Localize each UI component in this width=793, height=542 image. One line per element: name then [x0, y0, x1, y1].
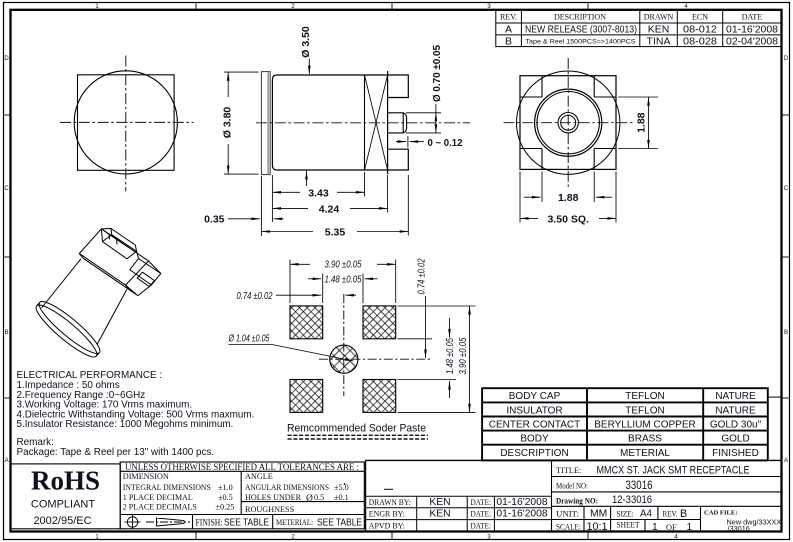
- svg-text:1.48 ±0.05: 1.48 ±0.05: [325, 274, 362, 285]
- svg-text:NEW RELEASE (3007-8013): NEW RELEASE (3007-8013): [525, 24, 637, 36]
- svg-text:Ø 3.80: Ø 3.80: [222, 107, 234, 139]
- svg-text:±0.1: ±0.1: [334, 493, 349, 502]
- svg-text:CENTER CONTACT: CENTER CONTACT: [489, 419, 580, 430]
- svg-text:08-012: 08-012: [683, 24, 717, 36]
- svg-text:D: D: [4, 56, 9, 62]
- svg-text:TINA: TINA: [647, 36, 671, 48]
- svg-text:01-16'2008: 01-16'2008: [496, 508, 547, 519]
- svg-text:KEN: KEN: [429, 497, 450, 508]
- svg-text:TEFLON: TEFLON: [625, 391, 664, 402]
- svg-text:A: A: [5, 458, 9, 464]
- svg-text:ECN: ECN: [692, 12, 708, 21]
- svg-text:ANGLE: ANGLE: [245, 472, 273, 481]
- svg-text:3.90 ±0.05: 3.90 ±0.05: [458, 337, 469, 374]
- svg-text:1 PLACE DECIMAL: 1 PLACE DECIMAL: [123, 493, 193, 502]
- svg-text:Ø 1.04 ±0.05: Ø 1.04 ±0.05: [228, 334, 270, 345]
- svg-text:A: A: [784, 458, 788, 464]
- svg-text:2002/95/EC: 2002/95/EC: [33, 515, 91, 527]
- svg-text:CAD FILE:: CAD FILE:: [704, 509, 738, 516]
- svg-text:FINISH:: FINISH:: [196, 519, 223, 529]
- svg-text:1.88: 1.88: [558, 192, 579, 204]
- svg-text:C: C: [4, 186, 9, 192]
- svg-text:ANGULAR DIMENSIONS: ANGULAR DIMENSIONS: [245, 483, 329, 492]
- svg-text:INSULATOR: INSULATOR: [506, 405, 562, 416]
- svg-text:METERIAL:: METERIAL:: [276, 517, 313, 527]
- svg-text:1: 1: [652, 522, 658, 533]
- svg-text:BODY CAP: BODY CAP: [509, 391, 561, 402]
- svg-text:METERIAL: METERIAL: [620, 448, 670, 459]
- svg-text:3.50 SQ.: 3.50 SQ.: [547, 213, 589, 225]
- svg-text:±1.0: ±1.0: [218, 483, 233, 492]
- svg-text:A4: A4: [640, 508, 653, 519]
- svg-text:SCALE:: SCALE:: [556, 521, 581, 531]
- svg-text:5.Insulator Resistance: 1000 M: 5.Insulator Resistance: 1000 Megohms min…: [17, 419, 234, 430]
- svg-text:01-16'2008: 01-16'2008: [496, 497, 547, 508]
- svg-text:C: C: [784, 186, 789, 192]
- svg-text:4.24: 4.24: [319, 203, 340, 215]
- svg-text:TEFLON: TEFLON: [625, 405, 664, 416]
- svg-text:01-16'2008: 01-16'2008: [726, 24, 778, 36]
- svg-text:SIZE:: SIZE:: [617, 508, 634, 518]
- svg-text:ENGR BY:: ENGR BY:: [369, 509, 405, 519]
- svg-text:Drawing NO:: Drawing NO:: [556, 495, 598, 505]
- svg-text:KEN: KEN: [429, 508, 450, 519]
- svg-text:±0.5: ±0.5: [218, 493, 233, 502]
- svg-text:NATURE: NATURE: [715, 405, 756, 416]
- svg-text:5.35: 5.35: [325, 227, 346, 239]
- svg-text:1.48 ±0.05: 1.48 ±0.05: [445, 338, 456, 374]
- svg-text:DESCRIPTION: DESCRIPTION: [554, 12, 606, 21]
- svg-text:HOLES UNDER: HOLES UNDER: [245, 493, 302, 502]
- svg-text:B: B: [784, 330, 788, 336]
- svg-text:10:1: 10:1: [587, 521, 608, 533]
- svg-text:FINISHED: FINISHED: [712, 448, 759, 459]
- svg-text:B: B: [505, 36, 512, 48]
- svg-text:B: B: [680, 508, 687, 520]
- svg-text:DRAWN BY:: DRAWN BY:: [369, 497, 411, 507]
- svg-text:0.5: 0.5: [314, 493, 324, 502]
- svg-text:TITLE:: TITLE:: [556, 466, 581, 475]
- svg-text:DATE: DATE: [742, 12, 763, 21]
- svg-text:BRASS: BRASS: [628, 434, 662, 445]
- svg-text:GOLD 30u": GOLD 30u": [710, 419, 762, 430]
- svg-text:GOLD: GOLD: [721, 434, 749, 445]
- svg-text:2 PLACE DECIMALS: 2 PLACE DECIMALS: [123, 502, 197, 511]
- svg-text:Remcommended Soder Paste: Remcommended Soder Paste: [287, 423, 426, 435]
- svg-text:D: D: [784, 56, 789, 62]
- svg-text:BODY: BODY: [520, 434, 549, 445]
- svg-text:REV.: REV.: [663, 508, 678, 518]
- svg-text:±0.25: ±0.25: [216, 502, 235, 511]
- svg-text:/33016: /33016: [728, 524, 750, 533]
- svg-text:NATURE: NATURE: [715, 391, 756, 402]
- svg-text:DIMENSION: DIMENSION: [123, 472, 169, 481]
- svg-text:KEN: KEN: [648, 24, 670, 36]
- svg-text:COMPLIANT: COMPLIANT: [31, 499, 95, 511]
- svg-text:1: 1: [687, 522, 693, 533]
- svg-text:3.43: 3.43: [308, 187, 329, 199]
- svg-text:MM: MM: [590, 509, 607, 520]
- svg-text:3.90 ±0.05: 3.90 ±0.05: [325, 260, 362, 271]
- svg-text:DATE:: DATE:: [471, 497, 492, 507]
- svg-text:DATE:: DATE:: [471, 509, 492, 519]
- svg-text:Model NO:: Model NO:: [556, 480, 588, 490]
- svg-text:Ø 3.50: Ø 3.50: [300, 26, 312, 58]
- svg-text:08-028: 08-028: [683, 36, 717, 48]
- svg-text:1.88: 1.88: [636, 112, 648, 133]
- svg-text:SHEET: SHEET: [617, 519, 641, 529]
- svg-text:BERYLLIUM COPPER: BERYLLIUM COPPER: [594, 419, 696, 430]
- svg-text:SEE TABLE: SEE TABLE: [317, 517, 362, 528]
- svg-text:0.74 ±0.02: 0.74 ±0.02: [417, 258, 428, 294]
- svg-text:0.74 ±0.02: 0.74 ±0.02: [237, 291, 273, 302]
- svg-text:INTEGRAL DIMENSIONS: INTEGRAL DIMENSIONS: [123, 483, 211, 492]
- svg-text:RoHS: RoHS: [31, 466, 100, 496]
- svg-text:±5.0: ±5.0: [334, 483, 349, 492]
- svg-text:0 ~ 0.12: 0 ~ 0.12: [428, 137, 463, 149]
- svg-text:12-33016: 12-33016: [612, 494, 652, 506]
- svg-text:REV.: REV.: [500, 12, 517, 21]
- svg-text:UNIT:: UNIT:: [556, 508, 579, 518]
- svg-text:OF: OF: [666, 523, 677, 532]
- svg-text:ROUGHNESS: ROUGHNESS: [245, 505, 295, 514]
- svg-text:Ø: Ø: [306, 494, 313, 504]
- svg-text:APVD BY:: APVD BY:: [369, 520, 405, 530]
- svg-text:DESCRIPTION: DESCRIPTION: [500, 448, 568, 459]
- svg-text:DATE:: DATE:: [471, 520, 492, 530]
- svg-text:Package: Tape & Reel per 13" w: Package: Tape & Reel per 13" with 1400 p…: [17, 447, 215, 458]
- svg-text:33016: 33016: [626, 478, 653, 492]
- svg-text:Tape & Reel 1500PCS=>1400PCS: Tape & Reel 1500PCS=>1400PCS: [526, 38, 636, 45]
- svg-text:02-04'2008: 02-04'2008: [726, 36, 778, 48]
- svg-text:SEE TABLE: SEE TABLE: [224, 518, 269, 529]
- svg-text:DRAWN: DRAWN: [644, 13, 674, 22]
- svg-text:Ø 0.70 ±0.05: Ø 0.70 ±0.05: [431, 45, 443, 102]
- svg-text:B: B: [5, 330, 9, 336]
- svg-text:MMCX ST. JACK SMT RECEPTACLE: MMCX ST. JACK SMT RECEPTACLE: [597, 464, 750, 476]
- svg-text:A: A: [505, 24, 512, 36]
- svg-text:0.35: 0.35: [204, 214, 225, 226]
